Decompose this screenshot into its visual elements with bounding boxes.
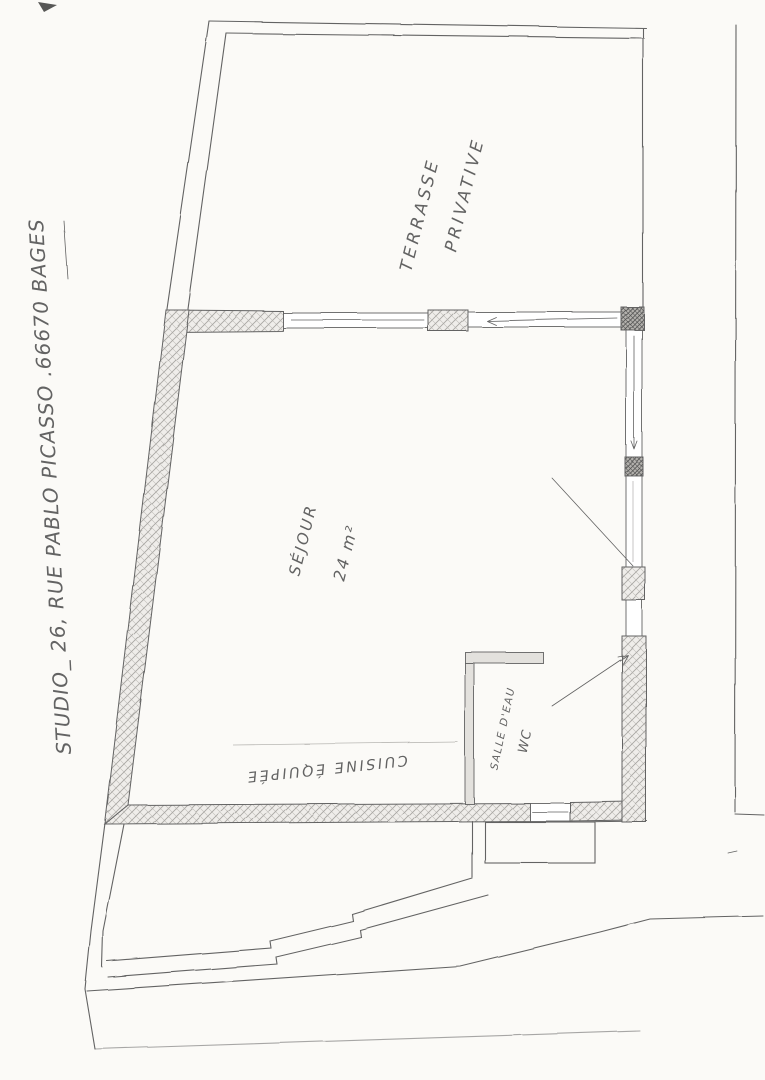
bathroom-label-line2: WC: [516, 728, 536, 755]
bathroom-label-line1: SALLE D'EAU: [488, 686, 517, 771]
right-wall-block-1: [625, 457, 643, 476]
top-wall-post: [428, 310, 468, 331]
boundary-left-lower-outer-line: [85, 823, 105, 1049]
building-walls: [105, 307, 647, 824]
kitchen-label: CUISINE ÉQUIPÉE: [244, 751, 408, 785]
walkway-lower-edge: [108, 895, 488, 977]
floor-plan-canvas: STUDIO_ 26, RUE PABLO PICASSO .66670 BAG…: [0, 0, 765, 1080]
right-wall-hatched-lower: [622, 636, 646, 822]
walkway-upper-edge: [107, 878, 472, 961]
bathroom-partition-top: [465, 652, 543, 663]
terrace-label-line2: PRIVATIVE: [441, 136, 489, 255]
labels: STUDIO_ 26, RUE PABLO PICASSO .66670 BAG…: [24, 136, 535, 786]
terrace-window-left: [283, 313, 428, 328]
right-boundary-end-tick: [735, 814, 764, 815]
living-room-area: 24 m²: [329, 522, 361, 582]
bathroom-partition-left: [465, 663, 474, 804]
terrace-label-line1: TERRASSE: [396, 156, 443, 273]
scan-ink-mark: [38, 2, 57, 12]
living-room-label: SÉJOUR: [285, 502, 321, 578]
right-wall-window-2: [626, 476, 642, 567]
corner-post-top-right: [621, 307, 644, 330]
door-leader-line-upper: [552, 478, 633, 566]
boundary-left-lower-inner-line: [102, 819, 125, 967]
door-leader-line-lower: [552, 655, 628, 706]
boundary-left-inner-line: [188, 33, 226, 309]
boundary-left-outer-line: [167, 21, 209, 309]
left-wall: [105, 310, 189, 824]
right-boundary-small-dash: [728, 851, 737, 853]
right-wall-window-3: [626, 600, 642, 636]
porch-and-walkway: [107, 821, 595, 977]
kitchen-counter-line: [233, 742, 458, 745]
street-edge-upper-line: [87, 916, 763, 991]
boundary-top-inner-line: [226, 33, 644, 38]
plan-title: STUDIO_ 26, RUE PABLO PICASSO .66670 BAG…: [24, 218, 76, 756]
right-wall-block-2: [622, 567, 645, 600]
right-boundary-line: [735, 25, 736, 812]
title-underline: [64, 221, 68, 279]
bottom-wall-hatched-left: [105, 803, 530, 824]
porch-step: [485, 822, 595, 863]
boundary-top-outer-line: [209, 21, 646, 28]
street-edge-lower-line: [95, 1031, 640, 1049]
